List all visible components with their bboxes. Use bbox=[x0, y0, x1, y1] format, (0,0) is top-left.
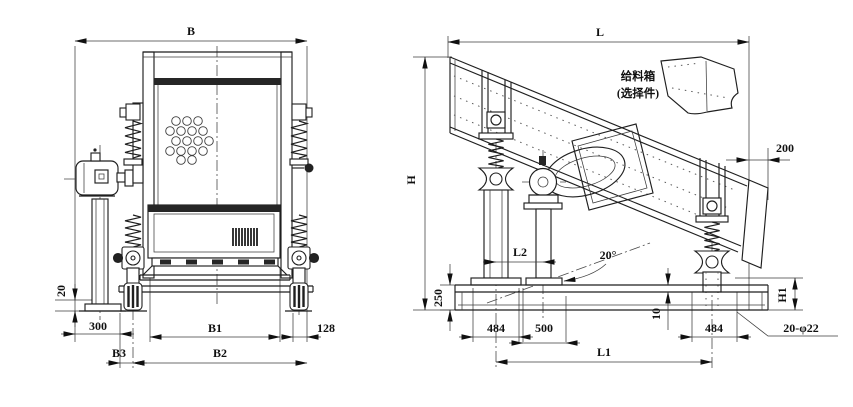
drawing-canvas: B 20 300 B1 128 B3 bbox=[0, 0, 853, 407]
dim-b1-label: B1 bbox=[208, 321, 222, 335]
dim-250-label: 250 bbox=[431, 289, 445, 307]
drive-shaft-circle bbox=[530, 169, 557, 196]
dim-200: 200 bbox=[726, 141, 794, 160]
dim-l-label: L bbox=[596, 25, 604, 39]
dim-l1-label: L1 bbox=[597, 345, 611, 359]
shaft-end-knob bbox=[305, 164, 314, 173]
dim-300-label: 300 bbox=[89, 319, 107, 333]
dim-484-right: 484 bbox=[678, 321, 751, 337]
dim-b-label: B bbox=[187, 24, 195, 38]
front-view: B 20 300 B1 128 B3 bbox=[54, 24, 335, 368]
feed-box-note-line1: 给料箱 bbox=[621, 69, 656, 83]
dim-10: 10 bbox=[649, 268, 668, 330]
dim-b3: B3 bbox=[106, 346, 147, 363]
shaft-nub bbox=[539, 156, 546, 165]
dim-484-left: 484 bbox=[459, 321, 533, 337]
side-view: 给料箱 (选择件) L H 200 L2 20° bbox=[404, 25, 838, 368]
dim-500-label: 500 bbox=[535, 321, 553, 335]
exciter-window-inner bbox=[578, 131, 647, 203]
base-rails-front bbox=[119, 275, 313, 311]
dim-l1: L1 bbox=[496, 345, 712, 362]
dim-h1: H1 bbox=[775, 278, 795, 310]
exciter-assembly bbox=[524, 124, 653, 210]
bolt-holes-callout: 20-φ22 bbox=[737, 312, 838, 336]
dim-b1: B1 bbox=[150, 321, 280, 337]
dim-20-label: 20 bbox=[54, 285, 68, 297]
dim-b: B bbox=[75, 24, 307, 41]
mesh-pattern bbox=[166, 117, 214, 165]
dim-20: 20 bbox=[54, 284, 75, 327]
dim-250: 250 bbox=[431, 264, 450, 331]
side-extension-lines bbox=[413, 36, 803, 342]
center-support-column bbox=[526, 209, 562, 285]
dim-484-left-label: 484 bbox=[487, 321, 505, 335]
dim-h: H bbox=[404, 57, 425, 310]
dim-angle-label: 20° bbox=[600, 248, 617, 262]
dim-b2: B2 bbox=[133, 346, 307, 363]
dim-10-label: 10 bbox=[649, 308, 663, 320]
dim-b2-label: B2 bbox=[213, 346, 227, 360]
exciter-window-outer bbox=[572, 124, 653, 210]
dim-l: L bbox=[448, 25, 749, 42]
lower-deck-front bbox=[143, 205, 287, 275]
dim-b3-label: B3 bbox=[112, 346, 126, 360]
right-suspension-front bbox=[288, 104, 319, 310]
vibrating-screen-technical-drawing: B 20 300 B1 128 B3 bbox=[0, 0, 853, 407]
feed-box-sketch: 给料箱 (选择件) bbox=[617, 57, 738, 114]
dim-128-label: 128 bbox=[317, 321, 335, 335]
incline-reference-line bbox=[487, 243, 650, 303]
dim-128: 128 bbox=[281, 321, 335, 337]
dim-500: 500 bbox=[509, 321, 580, 343]
dim-l2-label: L2 bbox=[513, 245, 527, 259]
feed-box-note-line2: (选择件) bbox=[617, 86, 659, 100]
dim-h-label: H bbox=[404, 175, 418, 185]
dim-200-label: 200 bbox=[776, 141, 794, 155]
dim-angle: 20° bbox=[564, 248, 617, 281]
hatch-marks bbox=[233, 228, 257, 246]
discharge-lip bbox=[742, 180, 768, 268]
dim-484-right-label: 484 bbox=[705, 321, 723, 335]
dim-300: 300 bbox=[61, 319, 134, 334]
bolt-holes-label: 20-φ22 bbox=[783, 321, 818, 335]
dim-h1-label: H1 bbox=[775, 287, 789, 302]
